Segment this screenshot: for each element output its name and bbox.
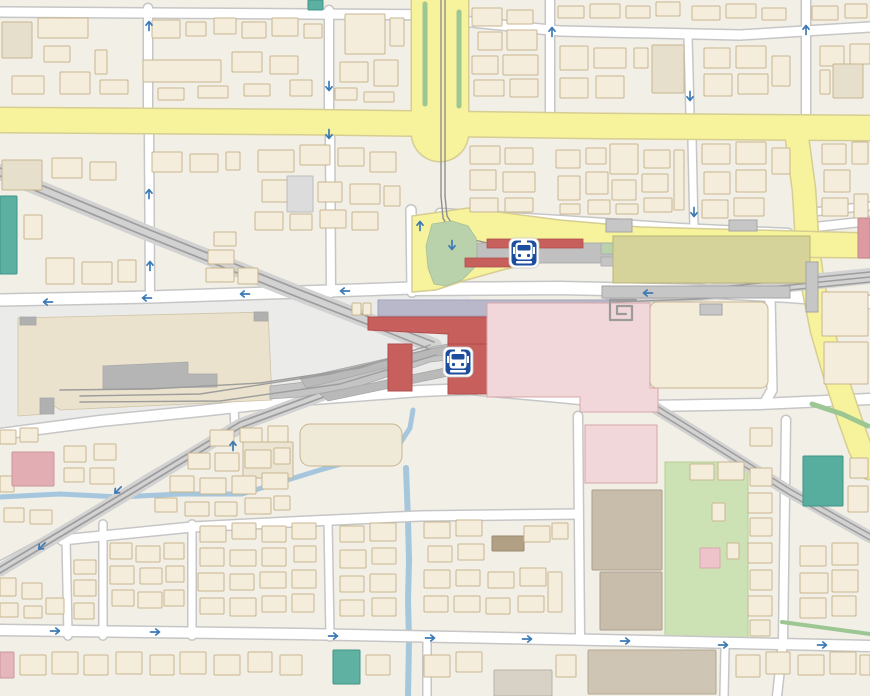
building: [727, 543, 739, 559]
building: [556, 150, 580, 168]
building: [116, 652, 142, 674]
building: [726, 4, 756, 18]
building: [20, 655, 46, 675]
walkway-station-stub: [700, 304, 722, 315]
building: [340, 600, 364, 616]
building: [164, 590, 184, 606]
train-station-icon-south[interactable]: [443, 347, 473, 377]
building: [424, 655, 450, 677]
building: [244, 84, 270, 96]
road-top-left: [0, 12, 462, 15]
building: [505, 148, 533, 164]
building: [734, 198, 764, 216]
building: [428, 546, 452, 562]
building: [488, 572, 514, 588]
train-windshield: [452, 354, 465, 360]
building: [850, 458, 868, 478]
building: [240, 428, 262, 442]
building: [200, 478, 226, 494]
depot-corner-nw: [20, 317, 36, 325]
building: [230, 550, 256, 566]
building: [470, 170, 496, 190]
building: [2, 160, 42, 190]
building: [200, 548, 224, 566]
building: [82, 262, 112, 284]
building: [820, 70, 830, 94]
building: [616, 204, 638, 214]
building: [208, 250, 234, 264]
building: [384, 186, 400, 206]
building: [245, 450, 271, 468]
building: [190, 154, 218, 172]
building: [44, 46, 70, 62]
building: [270, 56, 298, 74]
train-light-right: [461, 363, 464, 366]
building: [52, 652, 78, 674]
building: [158, 88, 184, 100]
building: [454, 596, 480, 612]
building: [152, 152, 182, 172]
building: [748, 543, 772, 563]
building: [198, 86, 228, 98]
building: [424, 570, 450, 588]
building: [38, 18, 88, 38]
building: [824, 342, 868, 384]
building: [274, 496, 290, 510]
building: [556, 655, 576, 677]
pink-building-east-edge: [858, 218, 870, 258]
building: [736, 655, 760, 677]
building: [352, 212, 378, 230]
building: [320, 210, 346, 228]
building: [364, 92, 394, 102]
building: [772, 56, 790, 86]
building: [370, 152, 396, 172]
building: [524, 526, 550, 542]
building: [702, 144, 730, 164]
building: [588, 200, 610, 214]
building: [822, 198, 848, 216]
train-bumper: [516, 261, 532, 264]
building: [833, 64, 863, 98]
building: [215, 502, 237, 516]
building: [268, 426, 288, 442]
pink-building-in-park: [700, 548, 720, 568]
building: [704, 74, 732, 96]
building: [258, 150, 294, 172]
building: [518, 596, 544, 612]
building: [335, 88, 357, 100]
teal-building-2: [0, 196, 17, 274]
building: [560, 46, 588, 70]
building: [366, 655, 390, 675]
building: [206, 268, 234, 282]
building: [150, 655, 174, 675]
building: [456, 520, 482, 536]
train-bumper: [450, 370, 466, 373]
building: [136, 546, 160, 562]
building: [610, 144, 638, 174]
building: [138, 592, 162, 608]
building: [238, 268, 258, 284]
building: [166, 566, 184, 582]
building: [118, 260, 136, 282]
building: [230, 574, 254, 590]
building: [470, 198, 498, 212]
building: [230, 598, 256, 616]
building: [318, 182, 342, 202]
building: [112, 590, 134, 606]
building: [0, 603, 18, 617]
building: [822, 144, 846, 164]
building: [274, 448, 290, 464]
building: [164, 543, 184, 559]
building: [750, 428, 772, 446]
building: [850, 44, 870, 64]
building: [800, 546, 826, 566]
building: [74, 580, 96, 596]
building: [200, 526, 226, 542]
building: [748, 493, 772, 513]
building: [292, 594, 314, 612]
building: [290, 214, 312, 230]
building: [820, 46, 844, 66]
building: [505, 198, 533, 212]
building: [0, 578, 16, 596]
building: [824, 170, 850, 192]
train-windshield: [518, 245, 531, 251]
building: [472, 8, 502, 26]
building: [704, 48, 730, 68]
building: [548, 572, 562, 612]
building: [832, 570, 858, 592]
building: [95, 50, 107, 74]
brown-building-bottom: [588, 650, 716, 694]
building: [255, 212, 283, 230]
building: [152, 20, 180, 38]
building: [854, 194, 868, 218]
building: [507, 30, 537, 50]
building: [704, 172, 730, 194]
building: [374, 60, 398, 86]
building: [642, 174, 668, 192]
building: [185, 502, 209, 516]
road-v68: [66, 538, 68, 636]
building: [458, 544, 484, 560]
building: [674, 150, 684, 210]
teal-building-4: [333, 650, 360, 684]
building: [594, 48, 626, 68]
building: [338, 148, 364, 166]
building: [736, 46, 766, 68]
building: [832, 596, 856, 616]
station-pink-annex: [585, 425, 657, 483]
teal-building-3: [803, 456, 843, 506]
building: [340, 62, 368, 82]
building: [692, 6, 720, 20]
school-building-1: [592, 490, 662, 570]
teal-building-1: [308, 0, 323, 10]
building: [2, 22, 32, 58]
building: [370, 574, 396, 592]
road-v147-south: [149, 132, 150, 298]
building: [110, 543, 132, 559]
building: [800, 573, 828, 593]
brown-building-small: [492, 536, 524, 551]
building: [262, 596, 286, 612]
building: [474, 80, 504, 96]
building: [262, 526, 286, 542]
school-building-2: [600, 572, 662, 630]
building: [586, 148, 606, 164]
road-v690-north: [688, 36, 690, 115]
building: [300, 145, 330, 165]
canal: [406, 468, 409, 696]
building: [644, 198, 672, 212]
building: [186, 22, 206, 36]
building: [352, 303, 361, 315]
building: [712, 503, 725, 521]
map-viewport[interactable]: [0, 0, 870, 696]
building: [340, 526, 364, 542]
building: [852, 142, 868, 164]
building: [24, 606, 42, 618]
building: [340, 550, 366, 568]
building: [510, 79, 538, 97]
building: [424, 522, 450, 538]
building: [456, 570, 480, 586]
building: [52, 158, 82, 178]
road-v725-bottom: [724, 648, 725, 696]
building: [262, 473, 288, 489]
building: [260, 572, 286, 588]
building: [612, 180, 636, 200]
building: [590, 4, 620, 18]
building: [812, 6, 838, 20]
road-v328-south: [328, 520, 330, 637]
walkway-main-deck: [602, 286, 790, 298]
train-light-left: [452, 363, 455, 366]
building: [552, 523, 568, 539]
building: [198, 573, 224, 591]
building: [74, 603, 94, 619]
building: [94, 444, 116, 460]
building: [750, 620, 770, 636]
building: [800, 598, 826, 618]
building: [832, 543, 858, 565]
building: [304, 24, 322, 38]
building: [340, 576, 364, 592]
building: [586, 172, 608, 194]
building: [848, 486, 868, 512]
building: [248, 652, 272, 672]
building: [90, 468, 114, 484]
building: [596, 76, 624, 98]
train-light-left: [518, 254, 521, 257]
building: [292, 570, 316, 588]
building: [46, 258, 74, 284]
building: [644, 150, 670, 168]
building: [626, 6, 650, 18]
walkway-north-2: [729, 220, 757, 231]
depot-corner-sw: [40, 398, 54, 414]
building: [736, 142, 766, 164]
building: [503, 55, 538, 75]
building: [272, 18, 298, 36]
building: [634, 48, 648, 68]
train-station-icon-north[interactable]: [509, 238, 539, 268]
building: [486, 598, 510, 614]
building: [656, 2, 680, 16]
building: [242, 22, 266, 38]
train-mirror-right: [533, 247, 535, 254]
building: [46, 598, 64, 614]
building: [372, 548, 396, 564]
building: [214, 18, 236, 34]
building: [24, 215, 42, 239]
building: [74, 560, 96, 574]
road-v578: [578, 416, 580, 637]
building: [690, 464, 714, 480]
building: [22, 583, 42, 599]
walkway-east-vertical: [806, 262, 818, 312]
building: [718, 462, 744, 480]
pink-building-sw: [12, 452, 54, 486]
building: [290, 80, 312, 96]
station-building-red-mid: [388, 344, 412, 391]
building: [798, 655, 824, 675]
building: [90, 162, 116, 180]
bus-terminal-overlay: [613, 236, 810, 283]
train-mirror-left: [447, 356, 449, 363]
building: [215, 453, 239, 471]
building: [390, 18, 404, 46]
building: [232, 52, 262, 72]
building: [262, 548, 286, 566]
building: [750, 570, 772, 590]
depot-corner-ne: [254, 312, 268, 321]
building: [226, 152, 240, 170]
train-light-right: [527, 254, 530, 257]
building: [470, 146, 500, 164]
building: [772, 148, 790, 174]
building: [702, 200, 728, 218]
building: [372, 598, 396, 616]
train-mirror-right: [467, 356, 469, 363]
building: [232, 523, 256, 539]
building: [100, 80, 128, 94]
building: [20, 428, 38, 442]
building: [280, 655, 302, 675]
pink-building-bottom-left: [0, 652, 14, 678]
building: [558, 176, 580, 200]
bus-terminal-area: [613, 236, 810, 283]
building: [214, 655, 240, 675]
building: [738, 74, 768, 94]
building: [845, 4, 867, 18]
building: [12, 76, 44, 94]
building: [345, 14, 385, 54]
building: [472, 56, 498, 74]
building: [84, 655, 108, 675]
building: [200, 598, 224, 614]
building: [180, 652, 206, 674]
bus-west-gray: [601, 257, 614, 266]
building: [188, 453, 210, 469]
building: [0, 430, 16, 444]
building: [456, 652, 482, 672]
building: [363, 303, 371, 315]
gray-building-bottom: [494, 670, 552, 696]
building: [170, 476, 194, 492]
building: [110, 566, 134, 584]
building: [64, 446, 86, 462]
building: [766, 652, 790, 674]
building: [245, 498, 271, 514]
building: [560, 204, 580, 214]
building: [750, 468, 772, 486]
building: [424, 596, 448, 612]
building: [762, 8, 786, 20]
building: [652, 45, 684, 93]
building: [350, 184, 380, 204]
building: [736, 170, 766, 192]
gray-building: [287, 176, 313, 212]
building: [155, 498, 177, 512]
rounded-building: [300, 424, 402, 466]
building: [558, 6, 584, 18]
walkway-north-1: [606, 219, 632, 232]
building: [143, 60, 221, 82]
train-mirror-left: [513, 247, 515, 254]
building: [292, 523, 316, 539]
building: [860, 655, 870, 675]
building: [507, 10, 533, 24]
building: [60, 72, 90, 94]
building: [140, 568, 162, 584]
building: [822, 292, 868, 336]
building: [370, 523, 396, 541]
building: [830, 652, 856, 674]
building: [748, 596, 772, 616]
building: [560, 78, 588, 98]
building: [214, 232, 236, 246]
building: [232, 476, 256, 494]
building: [503, 172, 535, 192]
building: [4, 508, 24, 522]
building: [520, 568, 546, 586]
building: [750, 518, 772, 536]
building: [294, 546, 316, 562]
building: [478, 32, 502, 50]
map-canvas[interactable]: [0, 0, 870, 696]
building: [30, 510, 52, 524]
building: [64, 468, 84, 482]
